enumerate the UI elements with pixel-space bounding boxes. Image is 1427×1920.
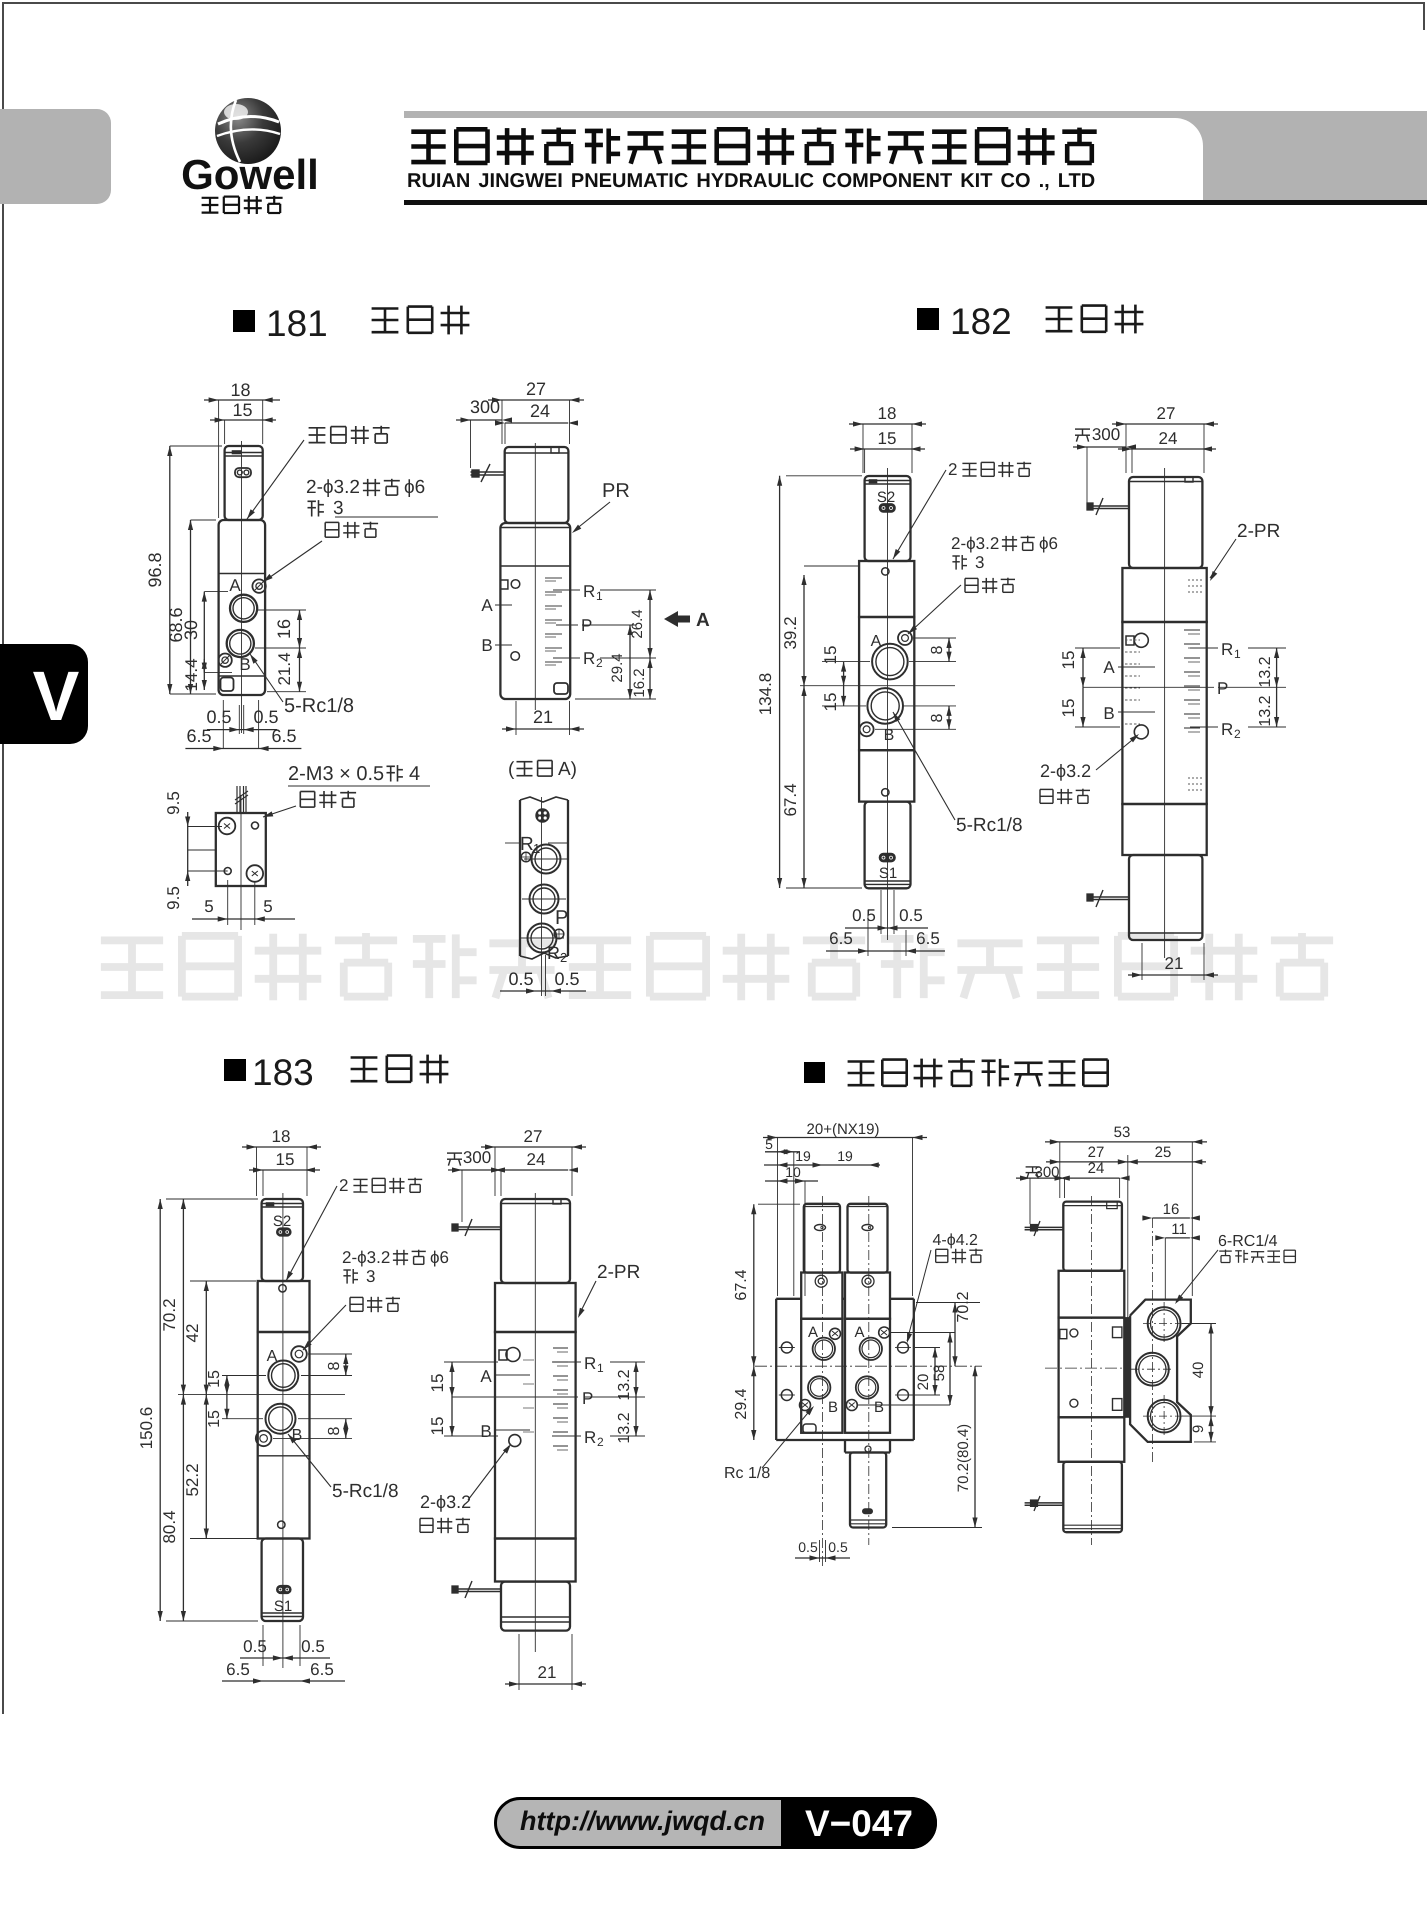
svg-text:6.5: 6.5 xyxy=(186,726,211,746)
svg-text:58: 58 xyxy=(931,1365,948,1382)
svg-text:4: 4 xyxy=(409,763,420,785)
svg-text:39.2: 39.2 xyxy=(781,616,800,649)
svg-text:67.4: 67.4 xyxy=(781,783,800,816)
svg-text:P: P xyxy=(582,1389,593,1408)
svg-text:11: 11 xyxy=(1171,1221,1187,1238)
svg-text:2: 2 xyxy=(1234,727,1241,741)
svg-text:21: 21 xyxy=(1165,954,1184,973)
svg-text:6.5: 6.5 xyxy=(310,1660,334,1679)
svg-text:70.2(80.4): 70.2(80.4) xyxy=(955,1424,972,1492)
svg-text:2-ϕ3.2: 2-ϕ3.2 xyxy=(951,534,999,553)
svg-text:2-ϕ3.2: 2-ϕ3.2 xyxy=(1040,761,1091,781)
svg-text:27: 27 xyxy=(526,379,546,399)
svg-text:R: R xyxy=(547,943,560,963)
svg-text:13.2: 13.2 xyxy=(1257,656,1274,687)
svg-text:80.4: 80.4 xyxy=(160,1510,179,1543)
svg-text:2-PR: 2-PR xyxy=(597,1262,640,1283)
svg-text:6.5: 6.5 xyxy=(916,929,940,948)
svg-text:15: 15 xyxy=(1059,699,1078,718)
svg-text:16.2: 16.2 xyxy=(631,668,648,697)
svg-text:5-Rc1/8: 5-Rc1/8 xyxy=(332,1481,399,1502)
svg-text:2-M3 × 0.5: 2-M3 × 0.5 xyxy=(288,763,384,785)
svg-text:A: A xyxy=(229,576,241,595)
svg-text:8: 8 xyxy=(326,1361,343,1370)
svg-text:R: R xyxy=(584,1354,596,1373)
svg-text:3: 3 xyxy=(333,498,344,519)
svg-text:A: A xyxy=(1103,658,1115,677)
svg-text:B: B xyxy=(874,1399,884,1416)
svg-text:B: B xyxy=(1103,704,1114,723)
svg-text:21: 21 xyxy=(533,707,553,727)
svg-text:0.5: 0.5 xyxy=(508,969,533,989)
svg-text:A: A xyxy=(696,610,710,631)
svg-text:0.5: 0.5 xyxy=(253,707,278,727)
svg-text:2-ϕ3.2: 2-ϕ3.2 xyxy=(306,477,360,498)
svg-text:8: 8 xyxy=(929,713,946,722)
svg-text:5: 5 xyxy=(765,1136,773,1152)
svg-text:15: 15 xyxy=(428,1374,447,1393)
svg-text:134.8: 134.8 xyxy=(756,673,775,716)
svg-text:13.2: 13.2 xyxy=(616,1412,633,1443)
svg-text:2: 2 xyxy=(560,950,567,965)
svg-text:15: 15 xyxy=(821,646,840,665)
svg-text:10: 10 xyxy=(785,1164,801,1180)
svg-text:15: 15 xyxy=(428,1417,447,1436)
svg-text:0.5: 0.5 xyxy=(852,906,876,925)
svg-text:S1: S1 xyxy=(879,865,897,882)
svg-text:0.5: 0.5 xyxy=(798,1539,818,1555)
svg-text:18: 18 xyxy=(272,1127,291,1146)
svg-text:18: 18 xyxy=(230,380,250,400)
svg-text:ϕ6: ϕ6 xyxy=(430,1248,449,1267)
svg-text:70.2: 70.2 xyxy=(160,1298,179,1331)
svg-text:1: 1 xyxy=(597,1361,604,1375)
svg-text:300: 300 xyxy=(463,1148,491,1167)
svg-text:27: 27 xyxy=(1157,404,1176,423)
svg-text:18: 18 xyxy=(878,404,897,423)
svg-text:0.5: 0.5 xyxy=(243,1637,267,1656)
svg-text:24: 24 xyxy=(530,401,550,421)
svg-text:25: 25 xyxy=(1155,1144,1172,1161)
svg-text:15: 15 xyxy=(232,400,252,420)
svg-text:2: 2 xyxy=(597,1435,604,1449)
svg-text:0.5: 0.5 xyxy=(206,707,231,727)
svg-text:40: 40 xyxy=(1190,1362,1207,1379)
svg-text:1: 1 xyxy=(1234,647,1241,661)
svg-text:300: 300 xyxy=(470,397,500,417)
svg-text:5: 5 xyxy=(263,897,272,916)
svg-text:9: 9 xyxy=(1190,1425,1207,1433)
svg-text:A: A xyxy=(480,1367,492,1386)
svg-text:B: B xyxy=(239,655,250,674)
svg-text:9.5: 9.5 xyxy=(164,791,183,815)
svg-text:Rc 1/8: Rc 1/8 xyxy=(724,1465,770,1482)
svg-text:R: R xyxy=(520,834,534,855)
svg-text:27: 27 xyxy=(1088,1144,1105,1161)
svg-text:2-ϕ3.2: 2-ϕ3.2 xyxy=(420,1492,471,1512)
svg-text:52.2: 52.2 xyxy=(183,1463,202,1496)
svg-text:5-Rc1/8: 5-Rc1/8 xyxy=(956,815,1023,836)
svg-text:29.4: 29.4 xyxy=(733,1388,750,1419)
svg-text:A): A) xyxy=(558,759,577,780)
svg-text:6.5: 6.5 xyxy=(271,726,296,746)
svg-text:15: 15 xyxy=(878,429,897,448)
svg-text:0.5: 0.5 xyxy=(828,1539,848,1555)
svg-text:15: 15 xyxy=(821,693,840,712)
svg-text:24: 24 xyxy=(1159,429,1178,448)
svg-text:ϕ6: ϕ6 xyxy=(1039,534,1058,553)
svg-text:5: 5 xyxy=(204,897,213,916)
svg-text:R: R xyxy=(584,1428,596,1447)
svg-text:2-PR: 2-PR xyxy=(1237,521,1280,542)
svg-text:B: B xyxy=(481,636,492,655)
svg-text:A: A xyxy=(267,1348,278,1365)
svg-text:0.5: 0.5 xyxy=(554,969,579,989)
svg-text:15: 15 xyxy=(206,1410,223,1428)
svg-text:R: R xyxy=(583,582,595,601)
svg-text:13.2: 13.2 xyxy=(1257,695,1274,726)
svg-text:96.8: 96.8 xyxy=(145,552,165,587)
svg-text:3: 3 xyxy=(975,553,984,572)
svg-text:9.5: 9.5 xyxy=(164,886,183,910)
svg-text:16: 16 xyxy=(1163,1201,1180,1218)
svg-text:PR: PR xyxy=(602,480,630,502)
svg-text:A: A xyxy=(871,633,882,650)
svg-text:15: 15 xyxy=(1059,651,1078,670)
svg-text:1: 1 xyxy=(533,841,540,856)
svg-text:8: 8 xyxy=(326,1426,343,1435)
svg-text:P: P xyxy=(1217,679,1228,698)
svg-text:6.5: 6.5 xyxy=(829,929,853,948)
svg-text:16: 16 xyxy=(274,619,294,639)
svg-text:14.4: 14.4 xyxy=(182,658,201,691)
svg-text:R: R xyxy=(1221,720,1233,739)
svg-text:2: 2 xyxy=(339,1176,348,1195)
svg-text:67.4: 67.4 xyxy=(733,1269,750,1300)
svg-text:R: R xyxy=(583,649,595,668)
svg-text:8: 8 xyxy=(929,645,946,654)
svg-text:P: P xyxy=(581,616,592,635)
svg-text:24: 24 xyxy=(1088,1160,1105,1177)
svg-text:29.4: 29.4 xyxy=(609,653,626,682)
svg-text:20+(NX19): 20+(NX19) xyxy=(807,1121,880,1138)
svg-text:42: 42 xyxy=(183,1324,202,1343)
svg-text:R: R xyxy=(1221,640,1233,659)
svg-text:24: 24 xyxy=(527,1150,546,1169)
svg-text:4-ϕ4.2: 4-ϕ4.2 xyxy=(933,1232,979,1249)
svg-text:2-ϕ3.2: 2-ϕ3.2 xyxy=(342,1248,390,1267)
svg-text:A: A xyxy=(854,1324,864,1341)
svg-text:300: 300 xyxy=(1092,425,1120,444)
svg-text:B: B xyxy=(480,1422,491,1441)
svg-text:21.4: 21.4 xyxy=(275,652,294,685)
svg-text:13.2: 13.2 xyxy=(616,1369,633,1400)
svg-text:(: ( xyxy=(508,759,515,780)
svg-text:2: 2 xyxy=(948,460,957,479)
svg-text:15: 15 xyxy=(206,1370,223,1388)
svg-text:5-Rc1/8: 5-Rc1/8 xyxy=(284,695,354,717)
svg-text:19: 19 xyxy=(837,1148,853,1164)
svg-text:150.6: 150.6 xyxy=(137,1407,156,1450)
svg-text:3: 3 xyxy=(366,1267,375,1286)
svg-text:19: 19 xyxy=(795,1148,811,1164)
svg-text:53: 53 xyxy=(1114,1124,1131,1141)
svg-text:6-RC1/4: 6-RC1/4 xyxy=(1218,1233,1278,1250)
svg-text:ϕ6: ϕ6 xyxy=(404,477,425,498)
svg-text:20: 20 xyxy=(915,1374,932,1391)
svg-text:B: B xyxy=(828,1399,838,1416)
svg-text:70.2: 70.2 xyxy=(955,1291,972,1322)
svg-text:30: 30 xyxy=(181,620,201,640)
svg-text:15: 15 xyxy=(276,1150,295,1169)
svg-text:6.5: 6.5 xyxy=(226,1660,250,1679)
svg-text:27: 27 xyxy=(524,1127,543,1146)
svg-text:0.5: 0.5 xyxy=(301,1637,325,1656)
svg-text:P: P xyxy=(555,907,568,929)
svg-text:0.5: 0.5 xyxy=(899,906,923,925)
svg-text:1: 1 xyxy=(596,589,603,603)
svg-text:21: 21 xyxy=(538,1663,557,1682)
svg-text:A: A xyxy=(808,1324,818,1341)
svg-text:A: A xyxy=(481,596,493,615)
